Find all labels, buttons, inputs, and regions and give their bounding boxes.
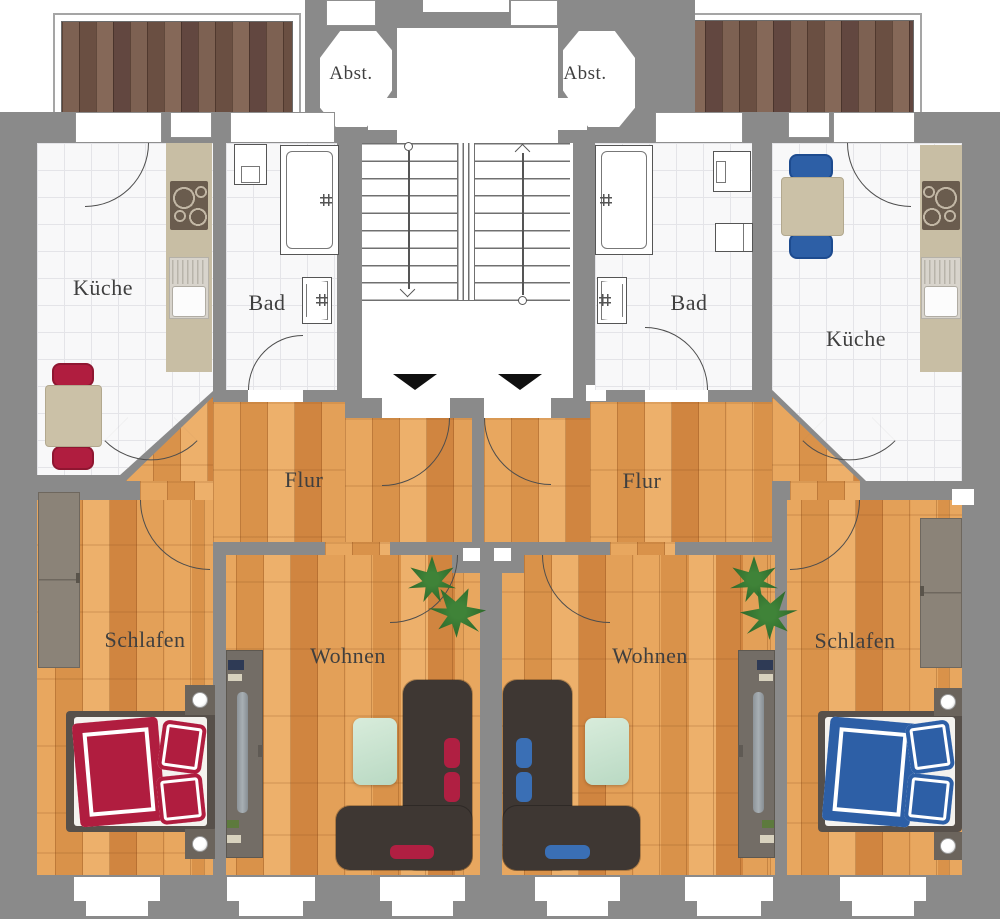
window-bottom-1 [74,877,160,901]
living-door-right-opening [610,542,675,555]
sofa-right-seat [503,806,640,870]
tv-right [753,692,764,813]
window-sill-3 [392,899,453,916]
entry-door-right-opening [484,398,551,418]
kitchen-window-left [170,112,212,138]
window-sill-4 [547,899,608,916]
rug-right [585,718,629,785]
bath-door-left-opening [248,390,303,402]
room-label-storage-left: Abst. [329,63,372,85]
bath-cabinet-right [715,223,753,252]
room-label-bath-left: Bad [249,290,286,316]
entrance-arrow-right [498,374,542,390]
room-label-kitchen-right: Küche [826,326,886,352]
window-sill-6 [852,899,914,916]
bath-window-left [230,112,335,143]
tv-left [237,692,248,813]
window-top-center [423,0,509,12]
hall-floor-right-notch [790,481,860,500]
sofa-right-cushion-2 [516,772,532,802]
room-label-bath-right: Bad [671,290,708,316]
balcony-door-left [75,112,162,143]
tv-left-mount [258,745,263,757]
stair-stringer [457,143,475,301]
window-bottom-2 [227,877,315,901]
sink-basin-left [172,286,206,317]
wardrobe-left [38,492,80,668]
room-label-bedroom-left: Schlafen [105,627,186,653]
bed-left-pillow-2 [156,773,207,826]
stair-upper-hall [397,28,558,143]
dining-table-right [781,177,844,236]
room-label-storage-right: Abst. [563,63,606,85]
window-bottom-4 [535,877,620,901]
sofa-left-cushion-1 [444,738,460,768]
sofa-left-cushion-2 [444,772,460,802]
room-label-hall-left: Flur [285,467,324,493]
lamp-right-top [940,694,956,710]
window-top-left [326,0,376,26]
stove-left [170,181,208,230]
stair-arrow-up-end [518,296,527,305]
deco-left-1 [228,660,244,670]
lamp-left-bottom [192,836,208,852]
sofa-left-cushion-3 [390,845,434,859]
stove-right [922,181,960,230]
window-bottom-5 [685,877,773,901]
room-label-hall-right: Flur [623,468,662,494]
hall-floor-right-a [590,402,772,542]
dining-table-left [45,385,102,447]
room-label-living-left: Wohnen [310,643,386,669]
balcony-door-right [833,112,915,143]
sofa-left-seat [336,806,472,870]
bath-window-right [655,112,743,143]
bed-left-duvet [72,716,167,827]
window-sill-1 [86,899,148,916]
bath-door-right-opening [645,390,708,402]
stair-arrow-down-line [408,151,410,289]
deco-right-1 [757,660,773,670]
wash-basin-right-faucet [599,294,611,306]
room-label-kitchen-left: Küche [73,275,133,301]
sink-basin-right [924,286,958,317]
bathtub-right-faucet [600,194,612,206]
living-door-left-opening [325,542,390,555]
stair-arrow-up-line [522,153,524,295]
deco-left-2 [228,674,242,681]
stair-flight-left [362,143,457,301]
wardrobe-right-handle [920,586,924,596]
sofa-right-cushion-1 [516,738,532,768]
deco-right-4 [760,835,774,843]
kitchen-window-right [788,112,830,138]
chimney-flue-right [494,548,511,561]
room-label-bedroom-right: Schlafen [815,628,896,654]
deco-right-2 [759,674,773,681]
chair-left-bottom [52,446,94,470]
entry-door-left-opening [382,398,450,418]
chimney-flue-left [463,548,480,561]
window-sill-5 [697,899,761,916]
window-bottom-6 [840,877,926,901]
window-sill-2 [239,899,303,916]
lamp-right-bottom [940,838,956,854]
bathtub-left-faucet [320,194,332,206]
room-label-living-right: Wohnen [612,643,688,669]
wash-basin-left-faucet [316,294,328,306]
wardrobe-left-handle [76,573,80,583]
bed-right-pillow-1 [905,719,956,775]
wall-niche-right [952,489,974,505]
chair-right-bottom [789,233,833,259]
washing-machine-left-door [241,166,260,183]
balcony-left-deck [61,21,293,115]
bed-left-pillow-1 [157,719,208,775]
wardrobe-right [920,518,962,668]
sofa-right-cushion-3 [545,845,590,859]
entrance-arrow-left [393,374,437,390]
hall-floor-left-a [213,402,345,542]
bed-right-pillow-2 [904,773,955,826]
chair-left-top [52,363,94,387]
deco-right-3 [762,820,774,828]
sink-drainer-right [924,260,958,284]
window-bottom-3 [380,877,465,901]
deco-left-3 [227,820,239,828]
lamp-left-top [192,692,208,708]
window-top-right [510,0,558,26]
rug-left [353,718,397,785]
floor-plan: Abst. Abst. Küche Bad Bad Küche Flur Flu… [0,0,1000,919]
stair-arrow-down-start [404,142,413,151]
tv-right-mount [738,745,743,757]
sink-drainer-left [172,260,206,284]
washing-machine-right-door [716,161,726,183]
deco-left-4 [227,835,241,843]
hall-floor-left-notch [140,481,213,500]
